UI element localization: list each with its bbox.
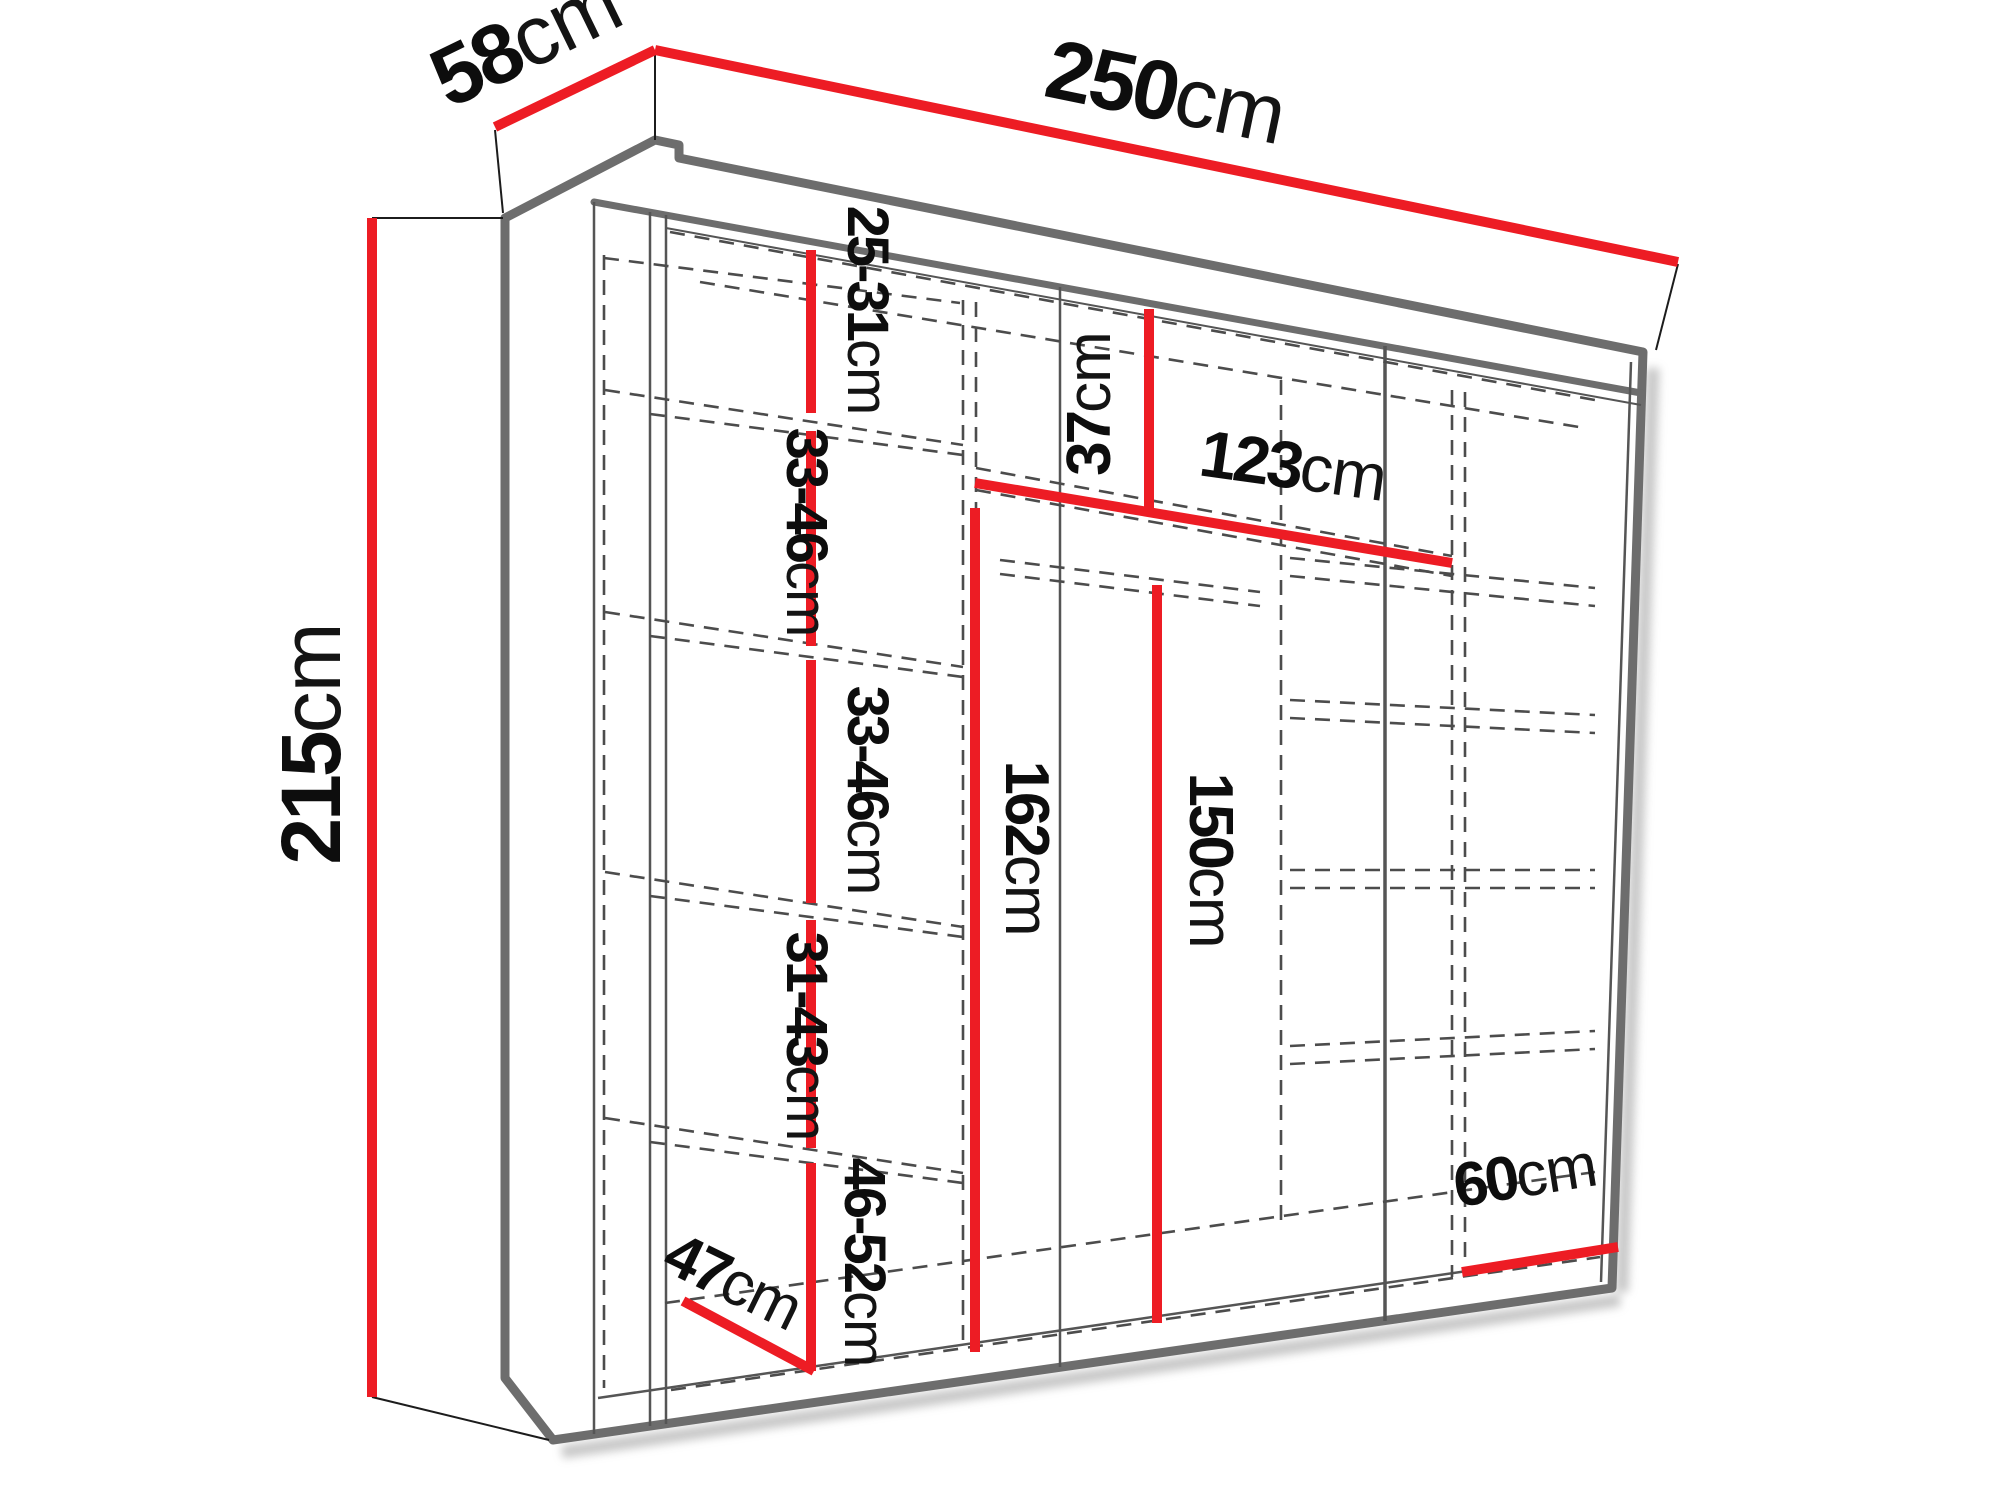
label-section-33-46-b: 33-46cm: [835, 686, 900, 895]
label-height-215: 215cm: [264, 623, 358, 864]
label-hanging-150: 150cm: [1176, 772, 1245, 947]
label-top-gap-37: 37cm: [1055, 332, 1124, 476]
label-section-33-46-a: 33-46cm: [774, 428, 839, 637]
label-section-31-43: 31-43cm: [774, 932, 839, 1141]
label-hanging-162: 162cm: [992, 760, 1061, 935]
label-section-25-31: 25-31cm: [835, 206, 900, 415]
label-section-46-52: 46-52cm: [832, 1158, 897, 1367]
wardrobe-dimension-diagram: 58cm 250cm 215cm 25-31cm 33-46cm 33-46cm…: [0, 0, 2000, 1500]
